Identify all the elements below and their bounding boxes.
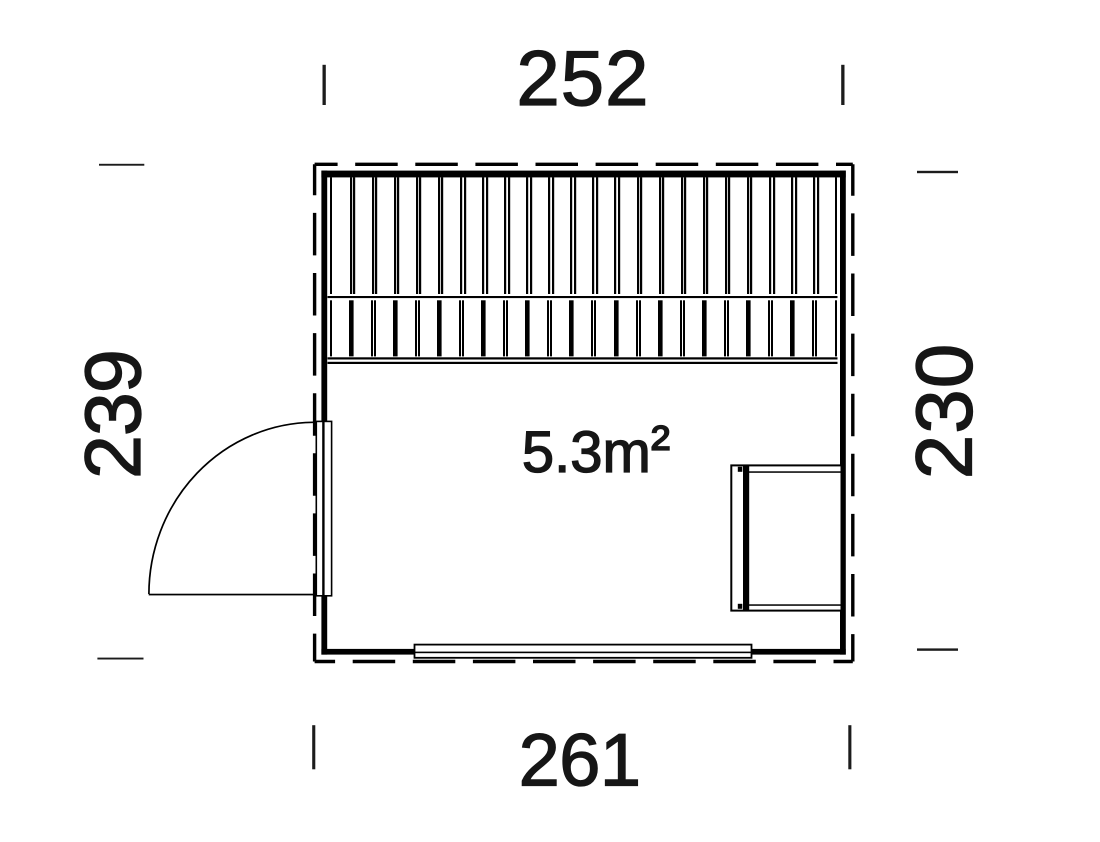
svg-text:252: 252	[516, 34, 649, 122]
svg-text:5.3m²: 5.3m²	[522, 414, 670, 485]
svg-text:261: 261	[519, 719, 641, 802]
svg-text:230: 230	[900, 343, 989, 479]
svg-text:239: 239	[68, 350, 157, 479]
